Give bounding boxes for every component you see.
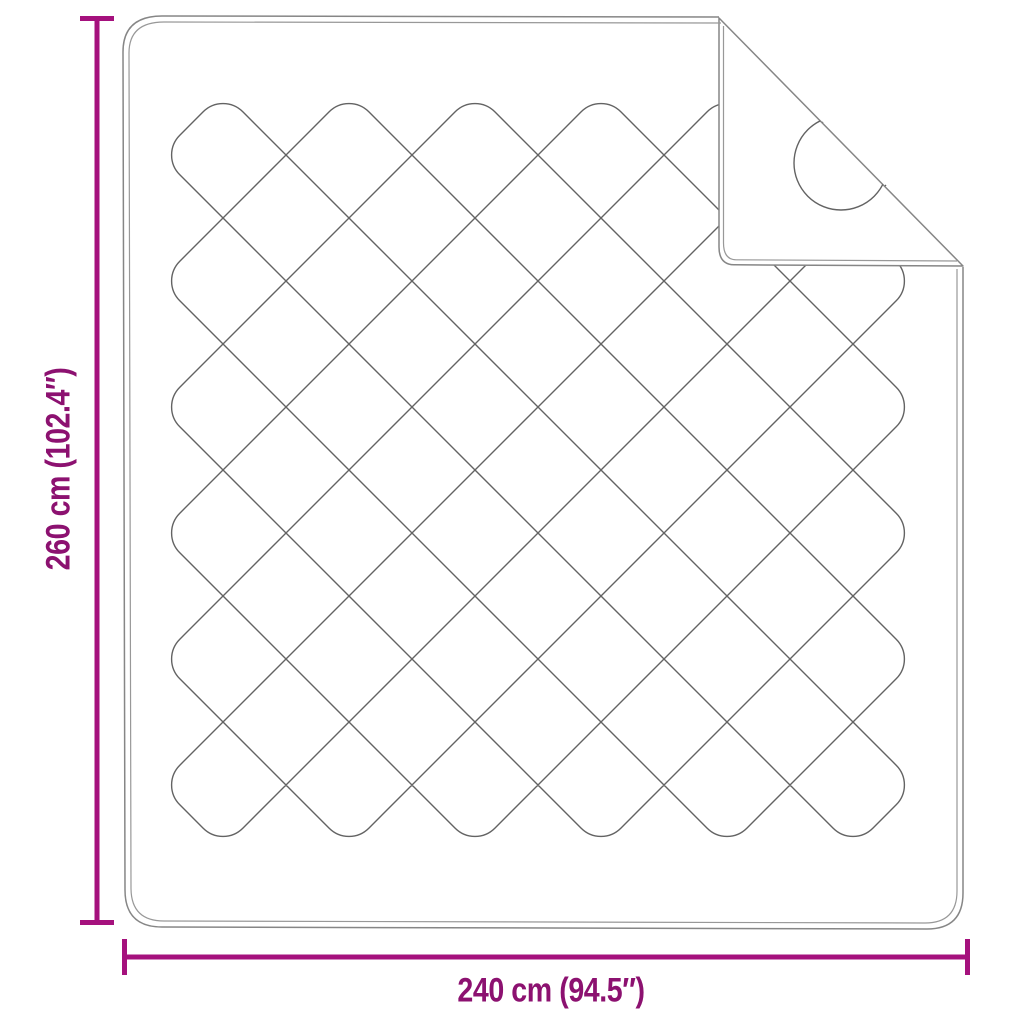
folded-corner-flap [719,18,963,266]
height-dimension-label: 260 cm (102.4″) [40,368,79,571]
folded-corner [719,18,963,266]
width-dimension-label: 240 cm (94.5″) [457,972,644,1011]
quilted-blanket-illustration [0,0,1024,1024]
product-dimension-diagram: 260 cm (102.4″) 240 cm (94.5″) [0,0,1024,1024]
